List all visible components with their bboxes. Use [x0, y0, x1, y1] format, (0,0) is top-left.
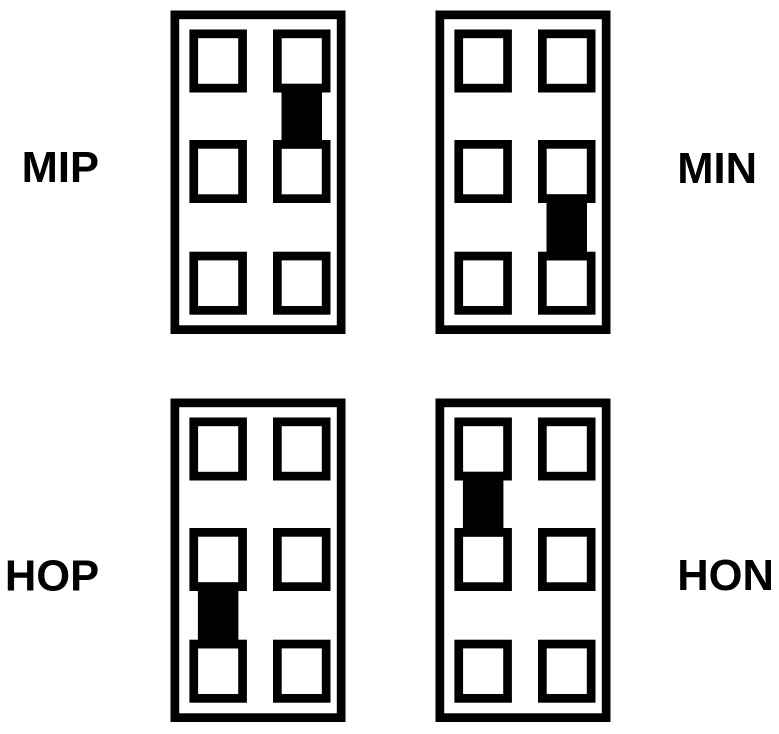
svg-text:HON: HON [677, 552, 774, 600]
svg-text:MIP: MIP [22, 144, 99, 192]
svg-text:HOP: HOP [5, 552, 99, 600]
svg-text:MIN: MIN [677, 145, 757, 193]
